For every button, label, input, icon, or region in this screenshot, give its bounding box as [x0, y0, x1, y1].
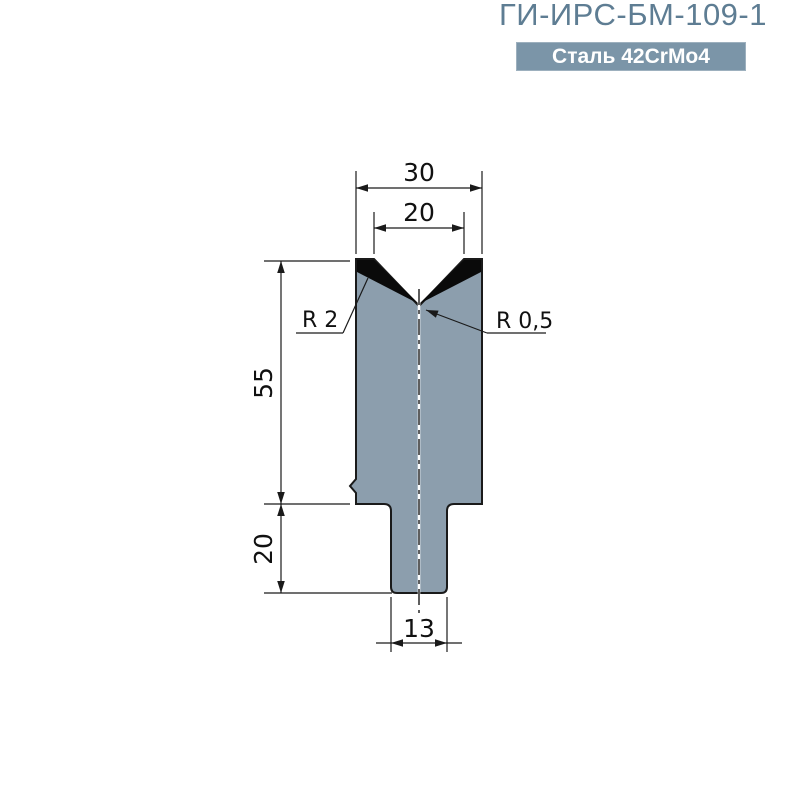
technical-drawing: 30 20 55 20 13 R 2 R 0,5 [0, 0, 800, 800]
dim-overall-width-label: 30 [403, 158, 435, 187]
dim-v-bottom-radius-label: R 0,5 [496, 309, 553, 334]
dim-tang-height-label: 20 [249, 533, 278, 565]
drawing-page: ГИ-ИРС-БМ-109-1 Сталь 42CrMo4 30 20 [0, 0, 800, 800]
dim-v-opening-label: 20 [403, 198, 435, 227]
dim-shoulder-radius-label: R 2 [302, 308, 338, 333]
die-profile [350, 259, 482, 593]
arrowhead [391, 639, 403, 647]
arrowhead [435, 639, 447, 647]
dim-body-height-label: 55 [249, 367, 278, 399]
dim-tang-width-label: 13 [403, 614, 435, 643]
